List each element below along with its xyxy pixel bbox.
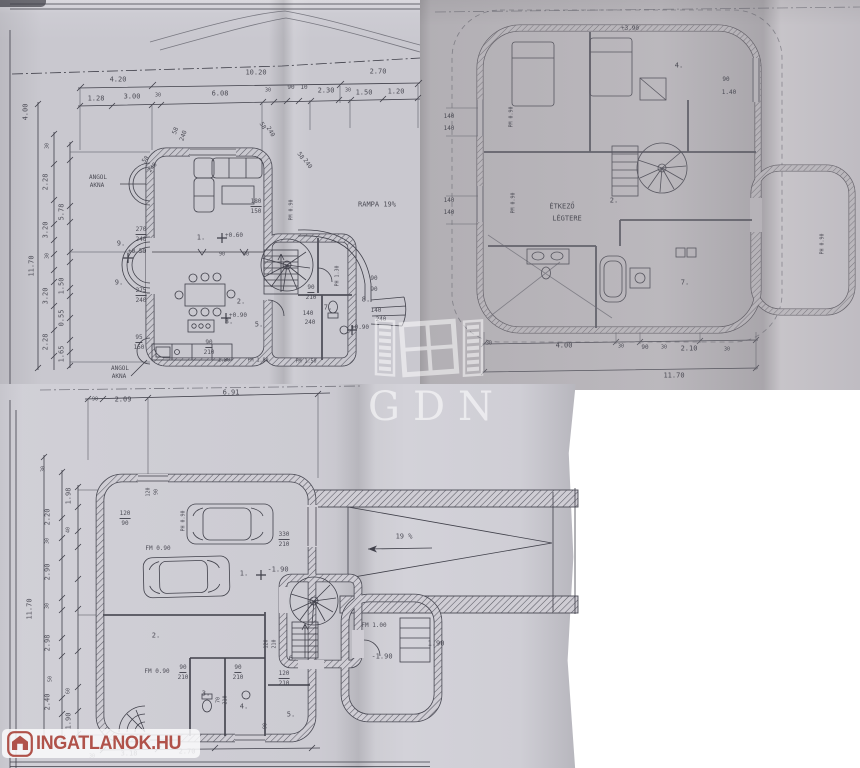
gdn-watermark: GDN: [352, 316, 522, 428]
basement-drawing: [10, 386, 578, 768]
house-icon: [7, 731, 33, 757]
ingatlanok-logo: INGATLANOK.HU: [2, 729, 200, 758]
floorplan-photo-collage: 4.2010.202.701.283.00306.083090102.30301…: [0, 0, 860, 768]
gdn-window-icon: [374, 318, 484, 384]
gdn-watermark-text: GDN: [352, 384, 522, 430]
ingatlanok-logo-text: INGATLANOK.HU: [36, 733, 181, 755]
